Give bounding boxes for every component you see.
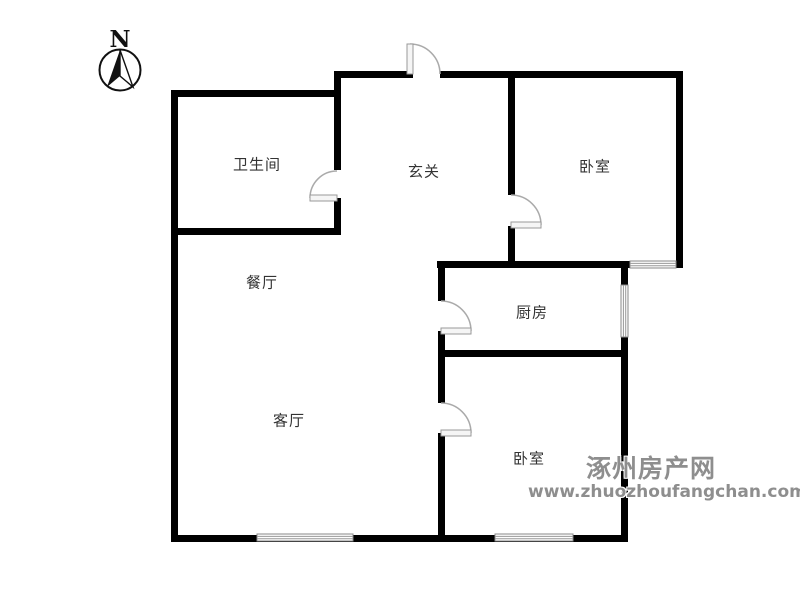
wall-bathroom-top — [171, 90, 341, 97]
room-label-living-room: 客厅 — [273, 410, 305, 431]
window-living-room — [257, 534, 353, 541]
door-bathroom — [310, 171, 337, 201]
door-bedroom-north — [511, 195, 541, 228]
north-compass-icon: N — [100, 26, 141, 91]
wall-kitchen-bottom — [438, 350, 628, 357]
windows-group — [257, 261, 676, 541]
wall-interior-upper — [438, 261, 445, 301]
wall-bathroom-bottom — [171, 228, 341, 235]
doors-group — [310, 44, 541, 436]
door-entrance — [407, 44, 440, 74]
window-bedroom-south — [495, 534, 573, 541]
room-label-bedroom-south: 卧室 — [513, 448, 545, 469]
floorplan-page: N — [0, 0, 800, 600]
wall-top-left — [334, 71, 413, 78]
room-label-entry-hall: 玄关 — [408, 161, 440, 182]
door-bedroom-south — [441, 403, 471, 436]
wall-top-right — [440, 71, 683, 78]
room-label-dining-room: 餐厅 — [246, 272, 278, 293]
wall-interior-lower — [438, 433, 445, 542]
wall-left — [171, 90, 178, 542]
wall-bedroom-north-left-upper — [508, 71, 515, 195]
wall-kitchen-top — [437, 261, 630, 268]
floorplan-drawing: N — [0, 0, 800, 600]
wall-right-south — [621, 337, 628, 542]
room-label-bedroom-north: 卧室 — [579, 156, 611, 177]
wall-interior-middle — [438, 331, 445, 403]
wall-right-north — [676, 71, 683, 268]
window-kitchen — [621, 285, 628, 337]
room-label-kitchen: 厨房 — [516, 302, 548, 323]
walls-group — [171, 71, 683, 542]
wall-bathroom-right-upper — [334, 71, 341, 170]
door-kitchen — [441, 301, 471, 334]
window-bedroom-north — [630, 261, 676, 268]
room-label-bathroom: 卫生间 — [233, 154, 281, 175]
wall-right-mid-stub — [621, 268, 628, 285]
